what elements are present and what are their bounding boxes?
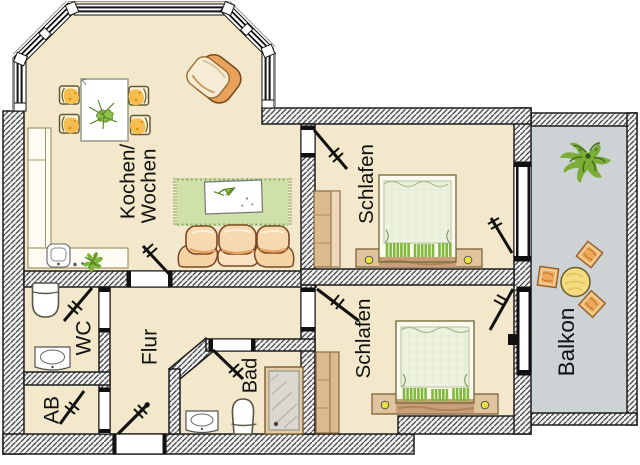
- svg-text:Wochen: Wochen: [138, 149, 161, 224]
- svg-text:Flur: Flur: [139, 329, 162, 365]
- svg-text:Schlafen: Schlafen: [352, 299, 375, 379]
- svg-text:Kochen/: Kochen/: [117, 144, 140, 220]
- svg-text:WC: WC: [73, 321, 96, 356]
- svg-text:Bad: Bad: [240, 358, 262, 394]
- svg-text:Balkon: Balkon: [554, 308, 579, 377]
- svg-text:Schlafen: Schlafen: [355, 144, 378, 224]
- svg-text:AB: AB: [41, 396, 64, 424]
